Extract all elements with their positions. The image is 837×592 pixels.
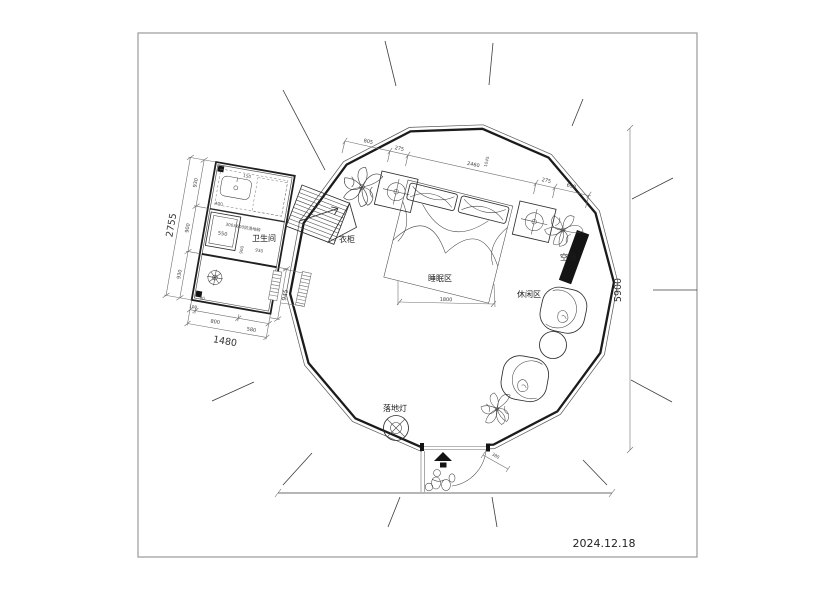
dim-top-0: 805 bbox=[363, 138, 374, 146]
entrance: 380 bbox=[420, 439, 510, 492]
floor-plan-page: 380 300X600防滑地砖 550 400 bbox=[0, 0, 837, 592]
door-post-left bbox=[420, 443, 424, 451]
dim-top-5: 690 bbox=[566, 183, 577, 191]
dim-bath-right: 945 bbox=[281, 289, 290, 302]
wardrobe-label: 衣柜 bbox=[339, 234, 355, 244]
leisure-area-label: 休闲区 bbox=[517, 289, 541, 299]
dim-bath-bottom-2: 580 bbox=[246, 326, 256, 334]
dim-entry-step: 380 bbox=[491, 452, 501, 460]
dim-bath-left-2: 930 bbox=[176, 269, 184, 279]
nightstand-right bbox=[512, 201, 556, 242]
plant-icon bbox=[344, 167, 383, 206]
dim-top-1: 275 bbox=[394, 145, 405, 153]
entry-arrow-stem bbox=[440, 463, 447, 468]
nightstand-left bbox=[374, 171, 418, 212]
air-conditioner-label: 空调 bbox=[560, 252, 576, 262]
door-post-right bbox=[486, 444, 490, 452]
tub-chair bbox=[537, 284, 590, 336]
dim-bath-bottom-total: 1480 bbox=[212, 334, 238, 349]
plant-icon bbox=[477, 388, 518, 429]
round-table bbox=[540, 332, 567, 359]
dim-bath-bottom-1: 800 bbox=[210, 319, 220, 327]
bathroom-passage bbox=[281, 269, 313, 308]
pillows bbox=[406, 183, 509, 224]
overall-height-dimension: 5900 bbox=[613, 125, 633, 453]
bed-width-dimension: 1800 bbox=[397, 281, 496, 307]
sleeping-area-label: 睡眠区 bbox=[428, 274, 452, 283]
dim-top-2: 2460 bbox=[466, 161, 480, 170]
person-figure bbox=[425, 470, 455, 491]
bed bbox=[384, 180, 513, 303]
tub-chair bbox=[498, 353, 551, 404]
dim-top-4: 275 bbox=[541, 177, 552, 185]
dim-bed-width: 1800 bbox=[440, 297, 453, 303]
dim-bath-left-1: 900 bbox=[184, 223, 192, 233]
date-label: 2024.12.18 bbox=[573, 537, 636, 550]
dim-bath-left-0: 930 bbox=[192, 178, 200, 188]
roof-radial-lines bbox=[212, 41, 697, 527]
door-swing-arc bbox=[452, 450, 486, 486]
bathroom-label: 卫生间 bbox=[252, 233, 276, 243]
floor-plan-drawing: 380 300X600防滑地砖 550 400 bbox=[0, 0, 837, 592]
dim-top-3: 1045 bbox=[483, 156, 490, 168]
bathroom: 300X600防滑地砖 550 400 150 90 930 900 930 2… bbox=[147, 152, 310, 356]
dim-overall-height: 5900 bbox=[613, 278, 624, 302]
tent-walls bbox=[280, 120, 623, 455]
floor-lamp-label: 落地灯 bbox=[383, 403, 407, 413]
